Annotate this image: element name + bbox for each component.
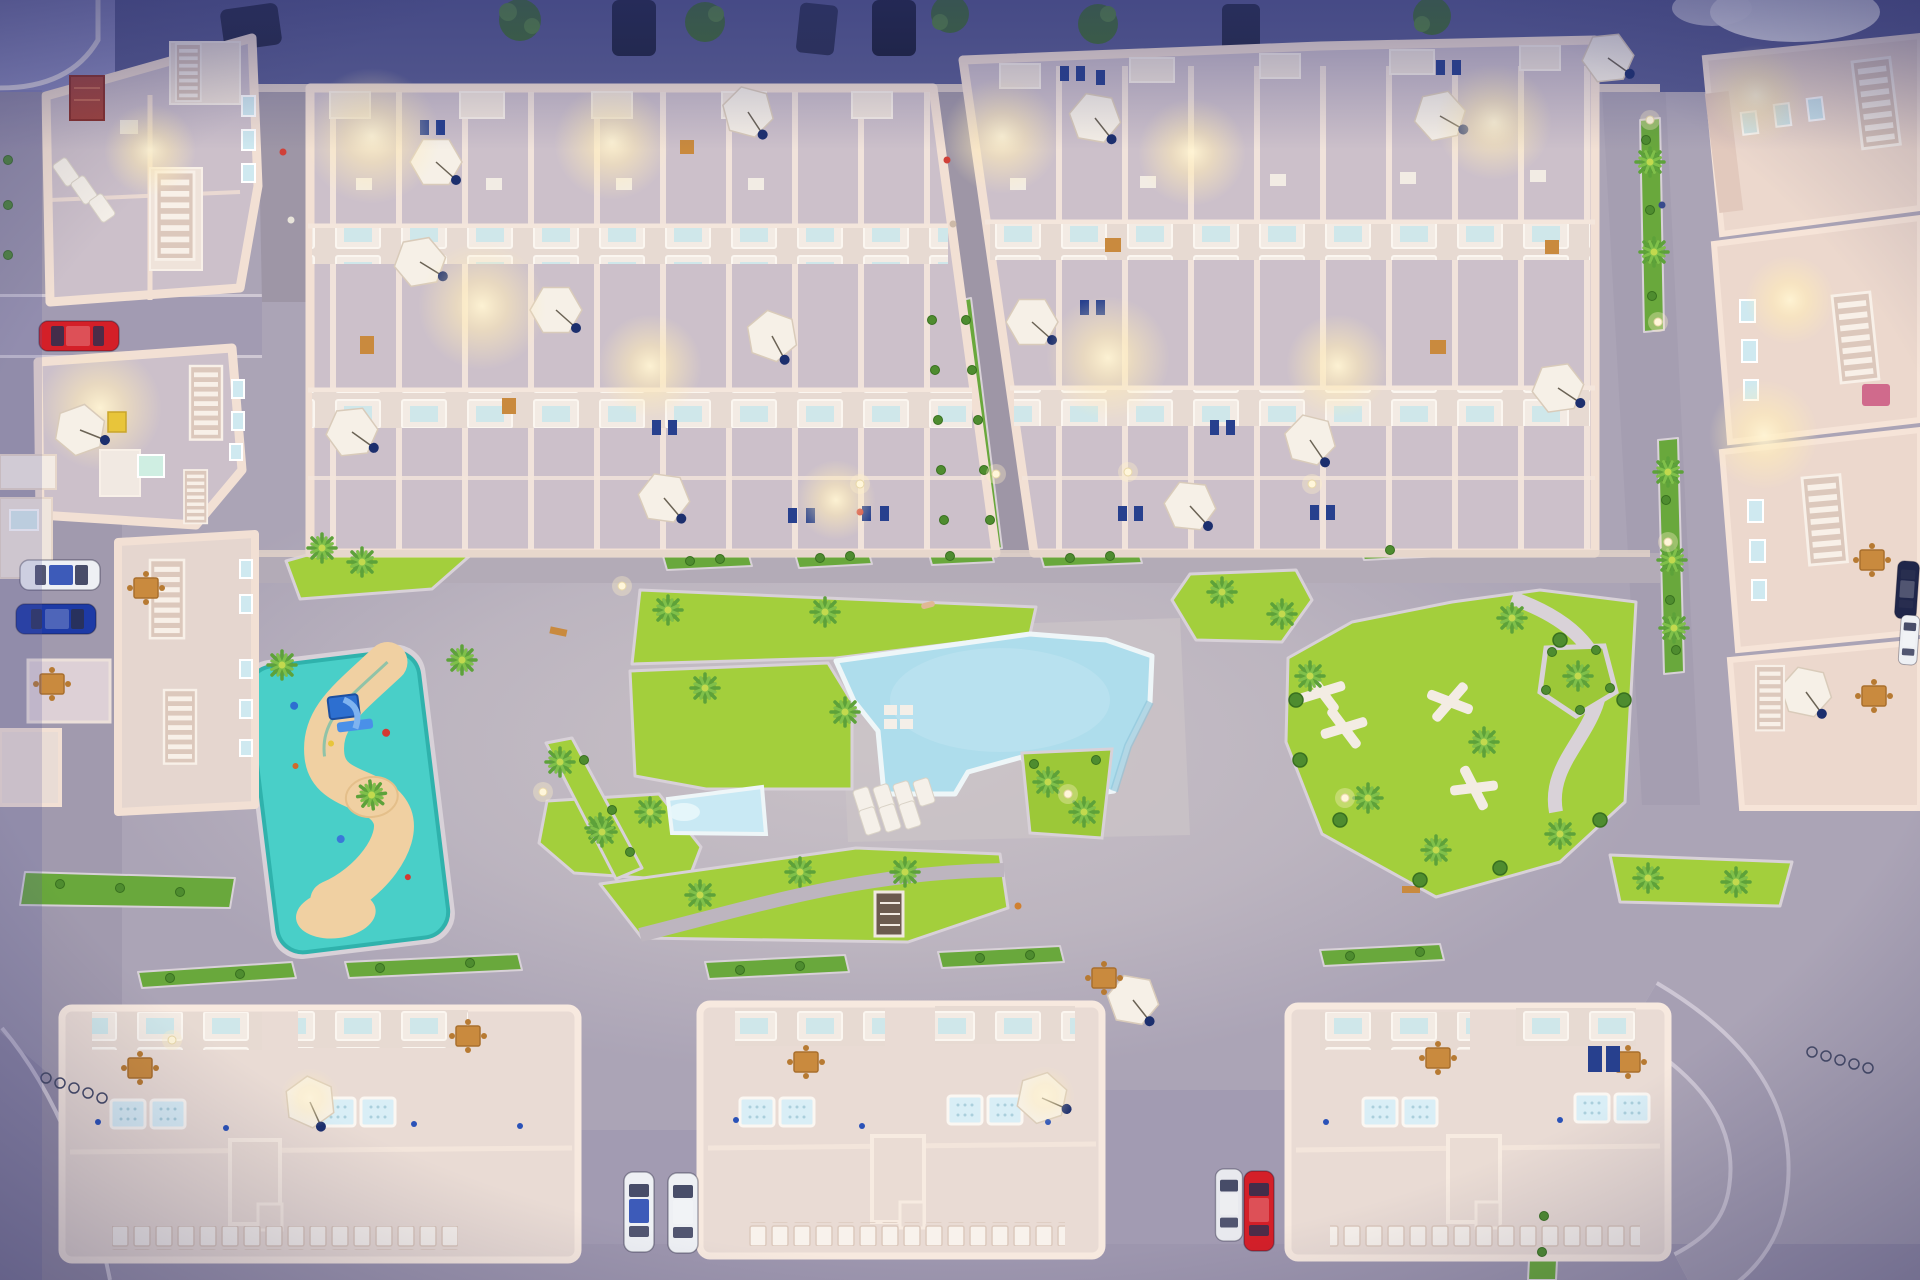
aerial-render bbox=[0, 0, 1920, 1280]
vignette bbox=[0, 0, 1920, 1280]
